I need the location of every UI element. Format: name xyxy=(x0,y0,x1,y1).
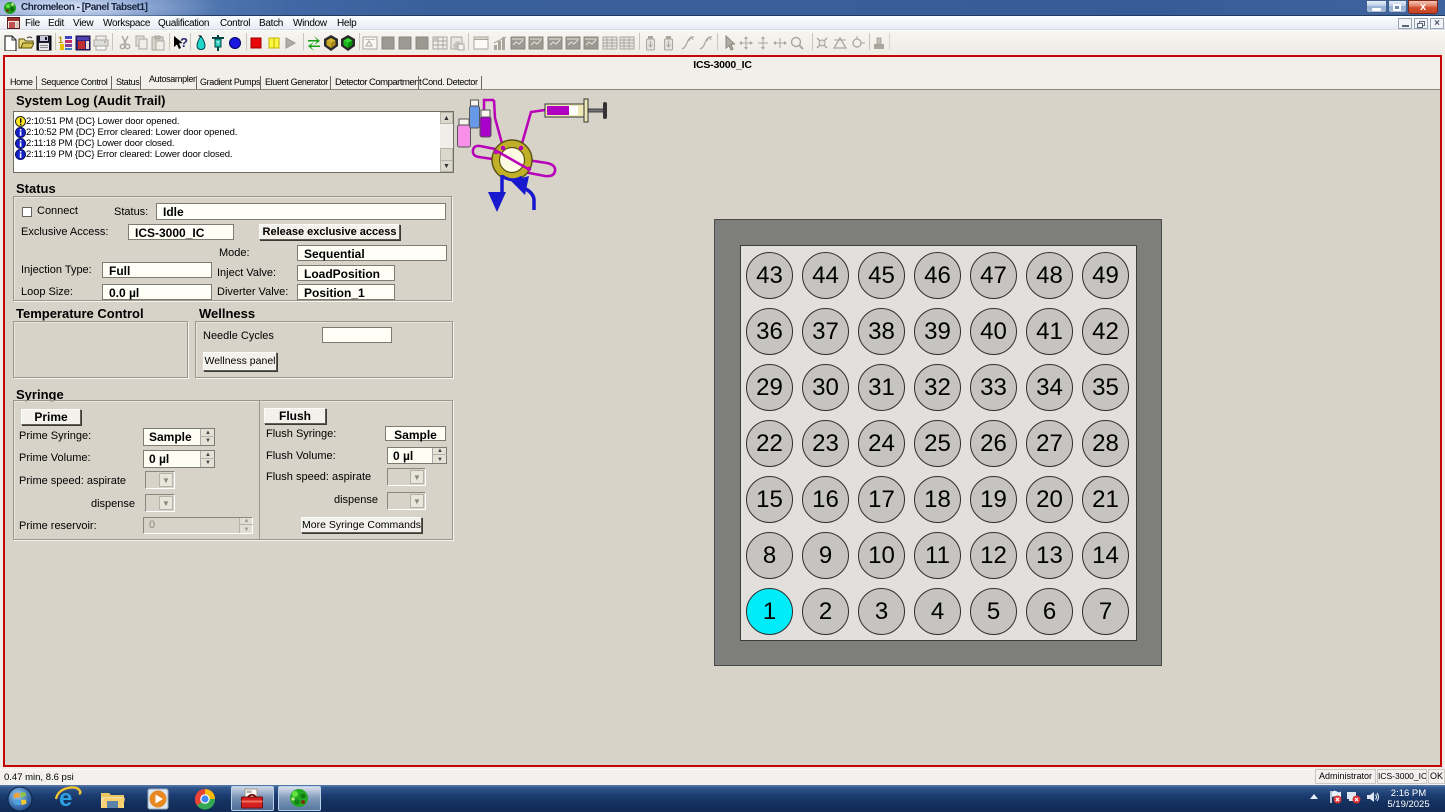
svg-text:?: ? xyxy=(180,35,188,50)
svg-text:1: 1 xyxy=(58,35,63,45)
